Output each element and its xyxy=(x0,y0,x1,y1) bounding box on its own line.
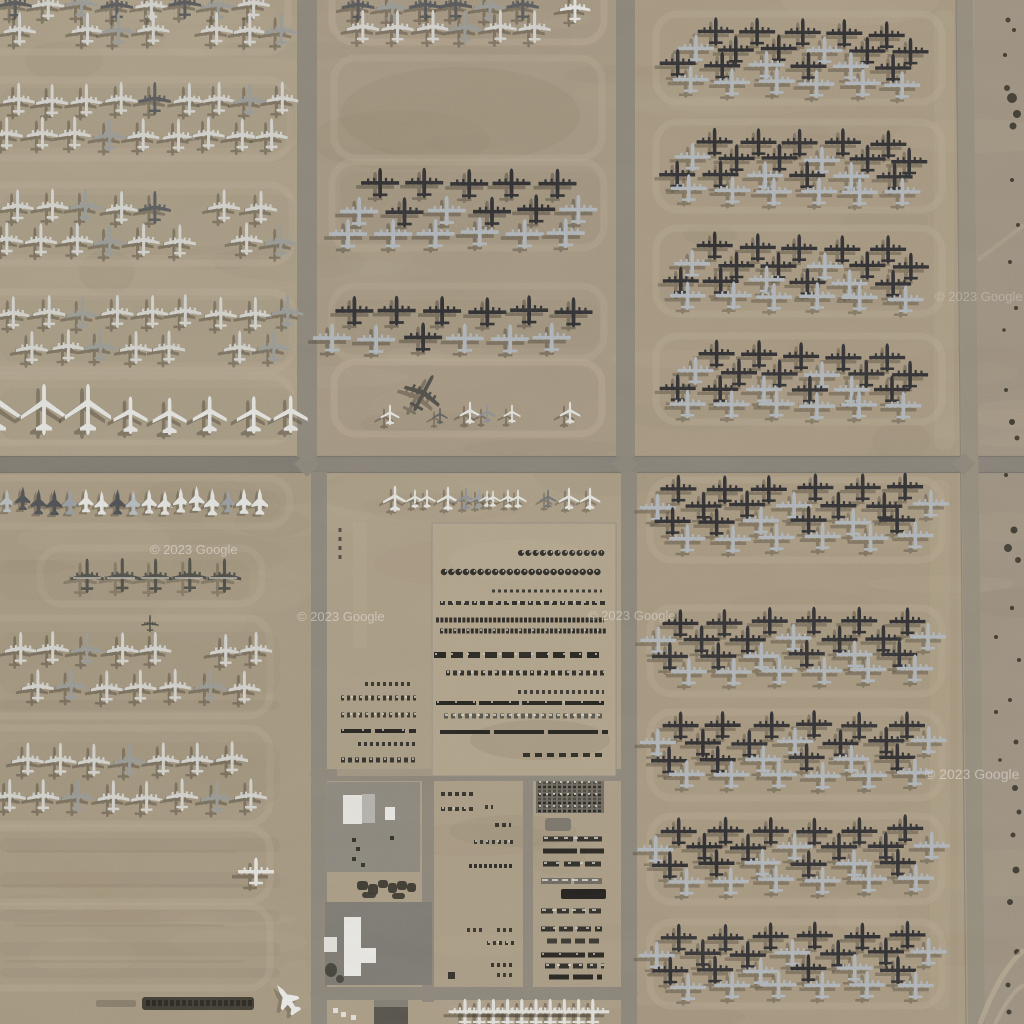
svg-text:© 2023 Google: © 2023 Google xyxy=(297,609,385,624)
svg-text:© 2023 Google: © 2023 Google xyxy=(925,766,1020,782)
svg-text:© 2023 Google: © 2023 Google xyxy=(150,542,238,557)
svg-text:© 2023 Google: © 2023 Google xyxy=(588,608,676,623)
svg-text:© 2023 Google: © 2023 Google xyxy=(935,289,1023,304)
